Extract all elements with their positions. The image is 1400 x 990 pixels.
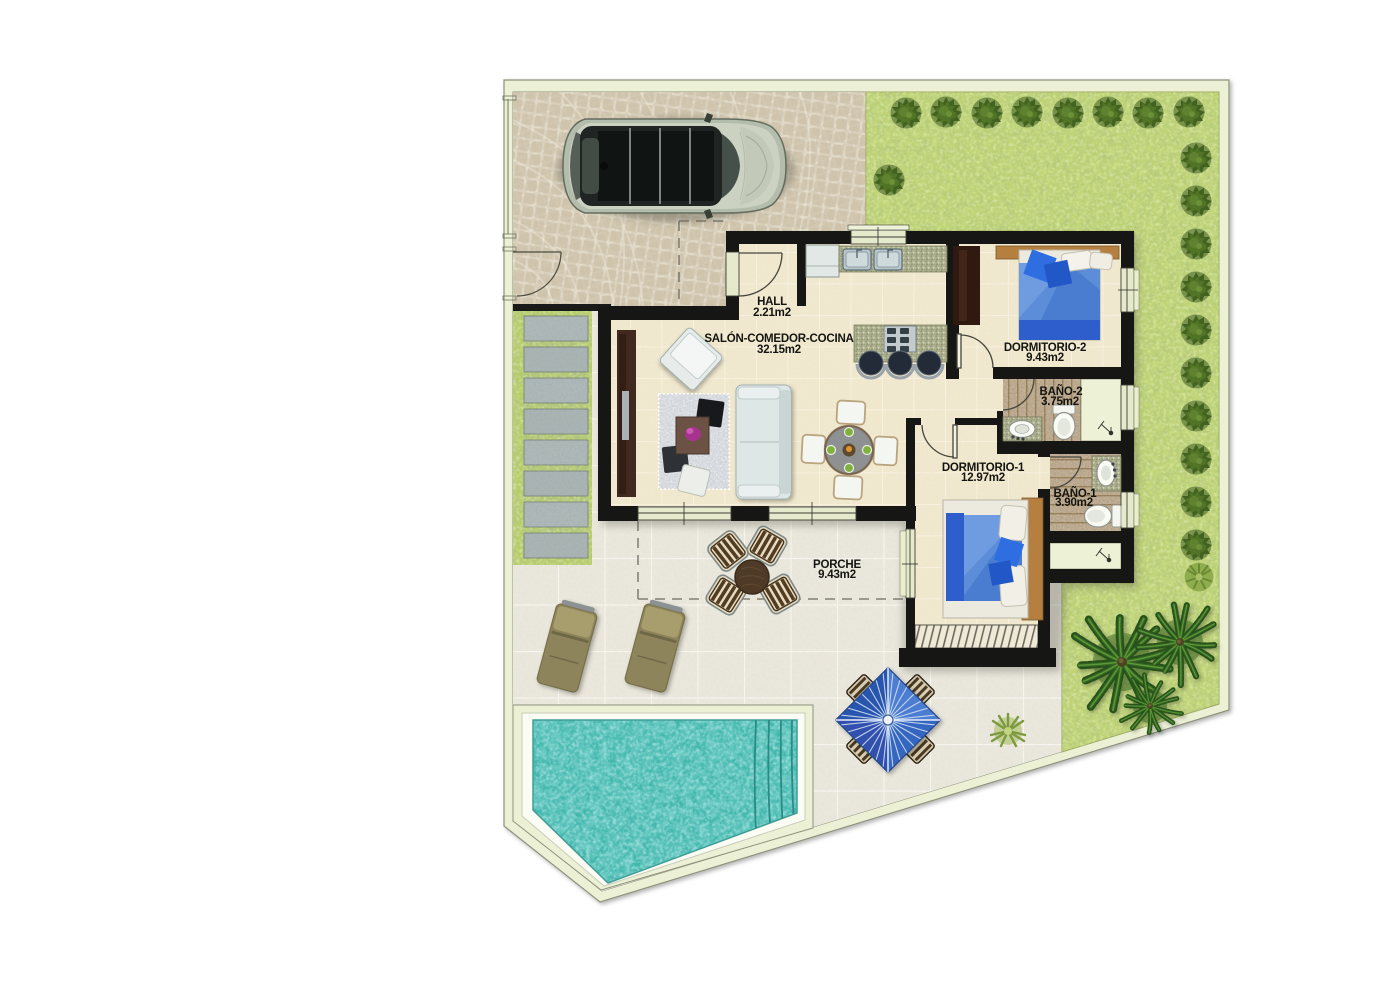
svg-text:3.90m2: 3.90m2 (1055, 497, 1093, 509)
svg-text:9.43m2: 9.43m2 (818, 569, 856, 581)
svg-text:2.21m2: 2.21m2 (753, 307, 791, 319)
svg-text:12.97m2: 12.97m2 (961, 472, 1005, 484)
svg-text:9.43m2: 9.43m2 (1026, 352, 1064, 364)
svg-text:3.75m2: 3.75m2 (1041, 396, 1079, 408)
svg-text:32.15m2: 32.15m2 (757, 344, 801, 356)
